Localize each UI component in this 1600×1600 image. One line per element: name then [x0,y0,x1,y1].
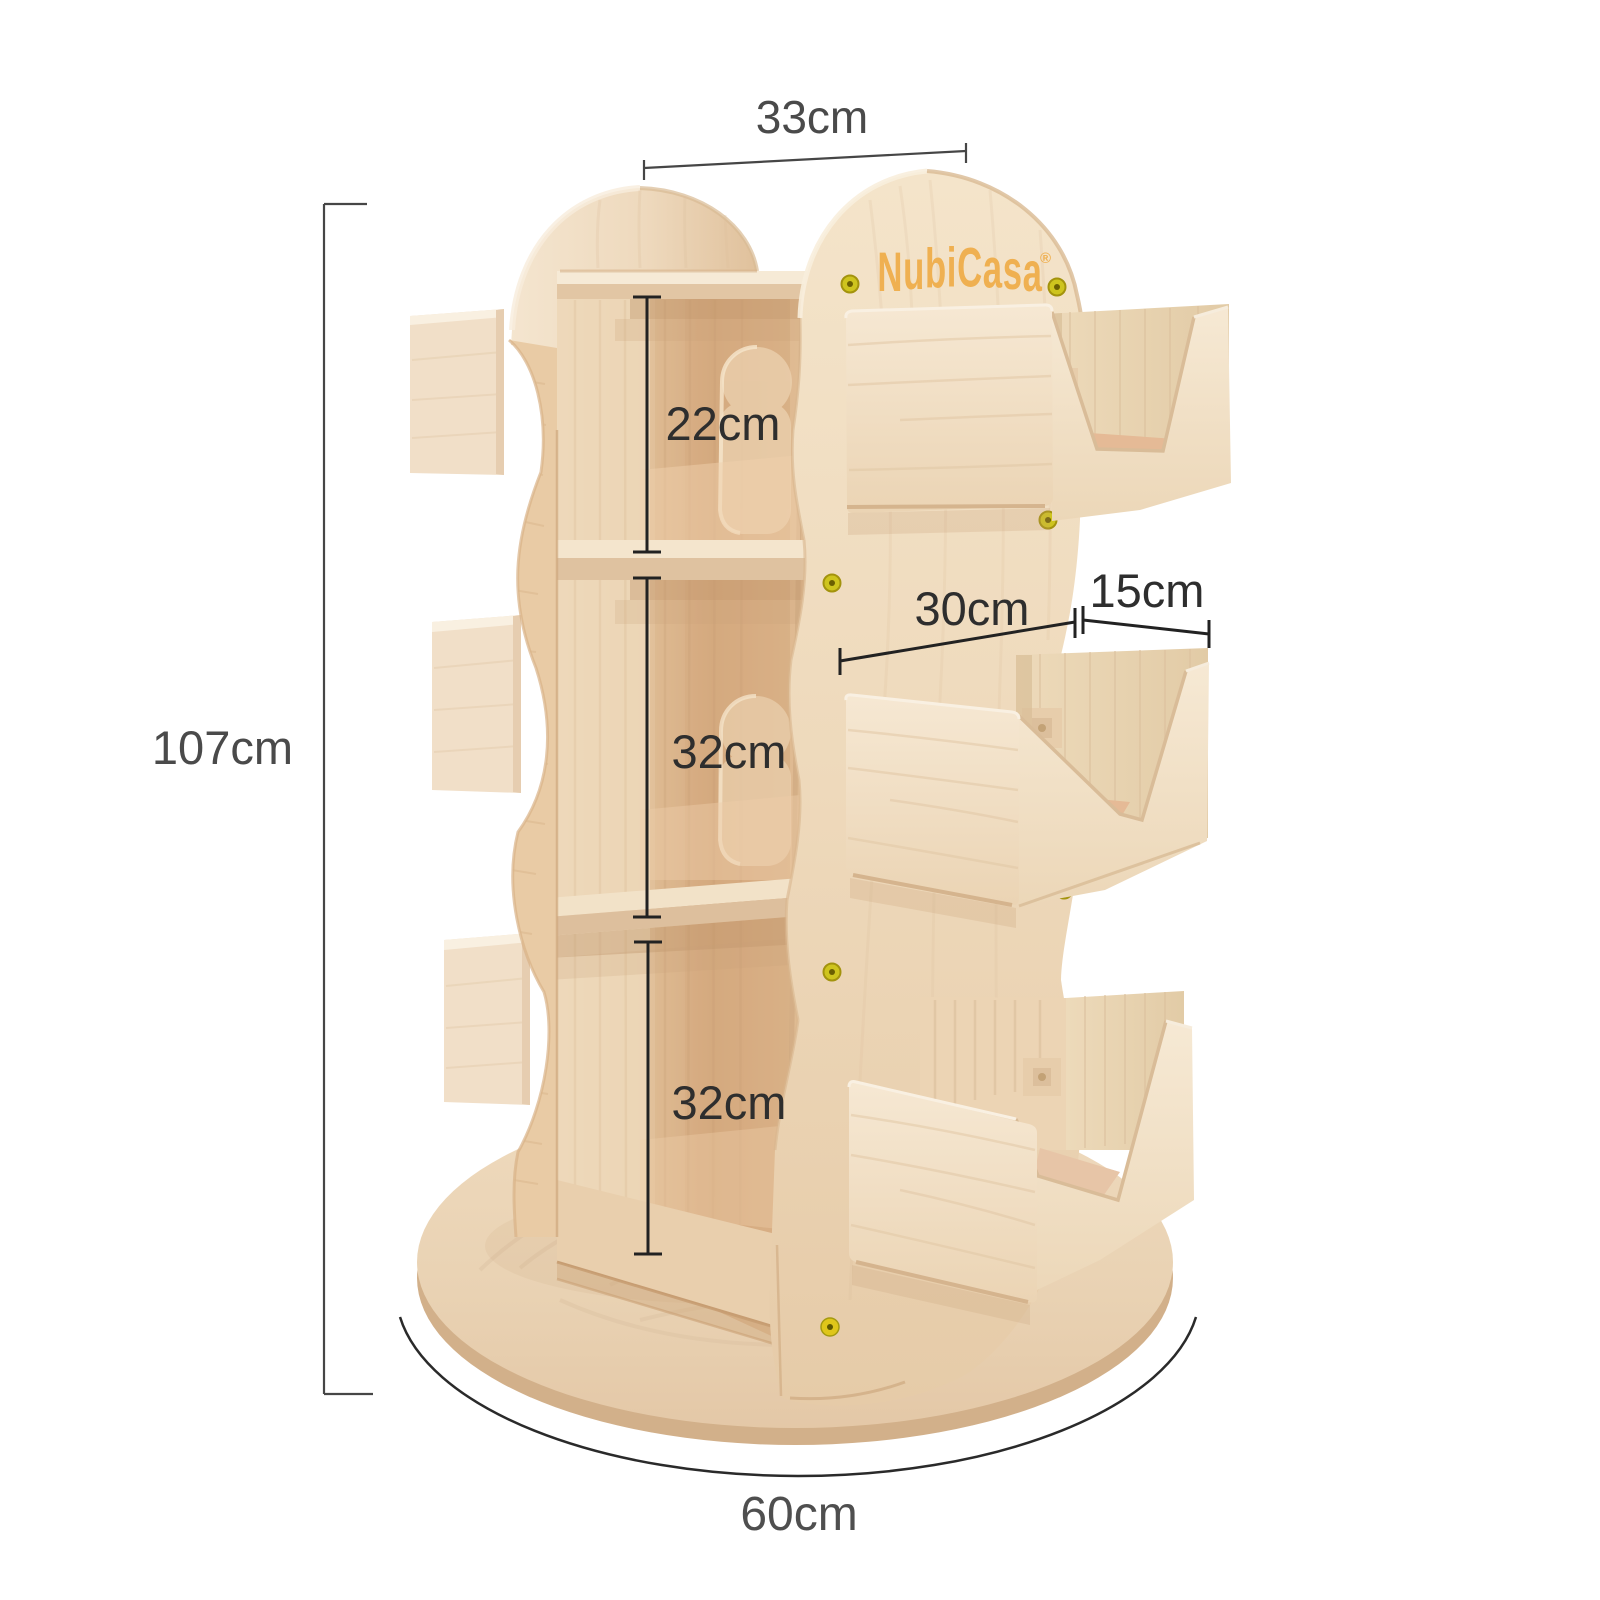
svg-text:22cm: 22cm [666,397,781,450]
svg-text:60cm: 60cm [740,1488,857,1541]
svg-text:NubiCasa: NubiCasa [877,236,1042,303]
svg-text:32cm: 32cm [672,725,787,778]
svg-text:®: ® [1040,250,1051,267]
svg-text:15cm: 15cm [1090,564,1205,617]
svg-text:32cm: 32cm [672,1076,787,1129]
svg-text:33cm: 33cm [756,91,868,143]
svg-text:30cm: 30cm [915,582,1030,635]
svg-text:107cm: 107cm [152,721,293,774]
